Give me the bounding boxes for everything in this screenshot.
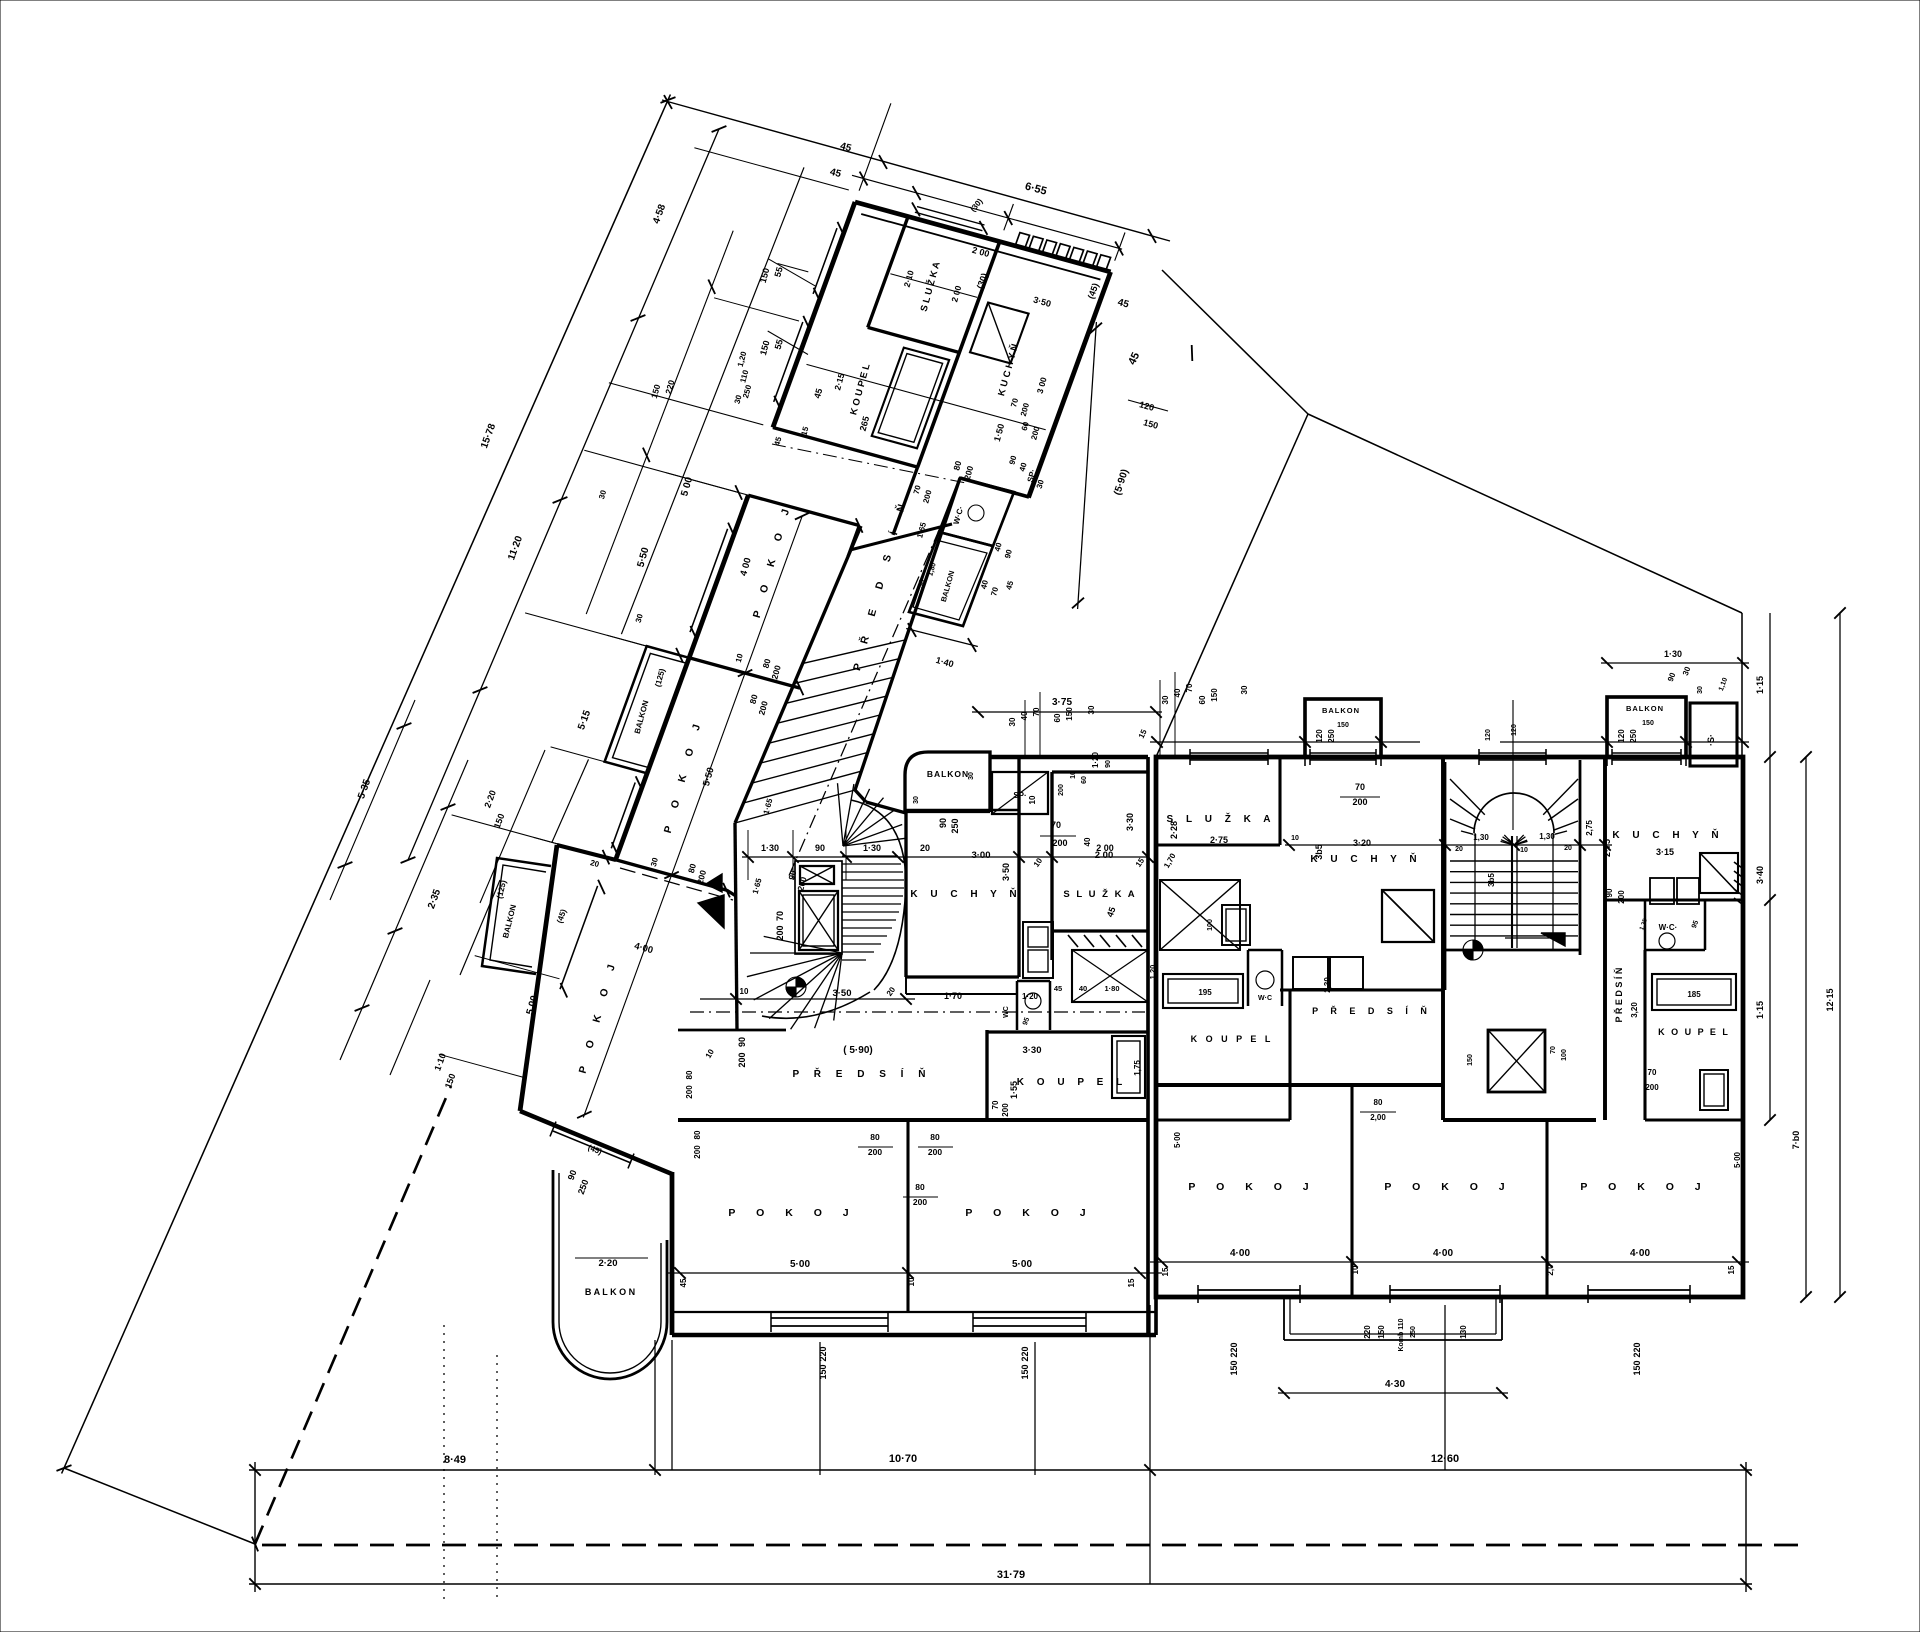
svg-text:3,20: 3,20 [1630,1002,1639,1018]
svg-text:3·50: 3·50 [832,988,851,999]
svg-text:90: 90 [1105,760,1112,768]
svg-text:80: 80 [685,1070,694,1079]
svg-text:W·C: W·C [1258,995,1272,1002]
svg-text:30: 30 [1008,717,1017,726]
svg-text:220: 220 [1363,1325,1372,1339]
svg-text:1·15: 1·15 [1755,1001,1765,1019]
svg-text:30: 30 [968,772,975,780]
svg-text:120: 120 [1315,729,1324,743]
svg-text:3·20: 3·20 [1353,838,1371,848]
svg-text:40: 40 [1020,711,1029,720]
svg-text:200: 200 [737,1052,747,1067]
svg-text:2·20: 2·20 [598,1258,617,1269]
svg-text:1·30: 1·30 [863,843,881,853]
svg-text:120: 120 [1485,729,1492,741]
svg-text:P Ř E D S Í Ň: P Ř E D S Í Ň [1613,968,1624,1023]
svg-text:20: 20 [1564,845,1572,852]
svg-text:200: 200 [1001,1103,1010,1117]
svg-text:1·20: 1·20 [1091,751,1100,768]
svg-text:200: 200 [928,1147,942,1157]
svg-text:70: 70 [775,911,785,921]
svg-text:4·00: 4·00 [1433,1248,1453,1259]
svg-text:10·70: 10·70 [889,1453,917,1465]
svg-text:150: 150 [1065,707,1074,721]
svg-text:1,30: 1,30 [1539,832,1555,841]
svg-text:30: 30 [1161,695,1170,704]
svg-text:250: 250 [1629,729,1638,743]
svg-text:70: 70 [1051,820,1061,830]
svg-text:K O U P E L: K O U P E L [1191,1034,1274,1044]
svg-text:8·49: 8·49 [444,1454,466,1466]
svg-text:·S·: ·S· [1706,734,1716,746]
svg-text:10: 10 [740,987,749,996]
svg-text:30: 30 [1087,705,1096,714]
svg-text:P O K O J: P O K O J [1580,1181,1709,1193]
svg-text:BALKON: BALKON [1626,704,1664,713]
svg-text:60: 60 [1081,776,1088,784]
svg-text:200: 200 [868,1147,882,1157]
svg-text:K O U P E L: K O U P E L [1017,1077,1127,1088]
svg-text:70: 70 [991,1100,1000,1109]
svg-text:100: 100 [1561,1049,1568,1061]
svg-text:200: 200 [1352,797,1367,807]
svg-text:2·75: 2·75 [1210,835,1228,845]
svg-text:80: 80 [870,1132,880,1142]
svg-text:120: 120 [1511,724,1518,736]
svg-text:15: 15 [1161,1267,1170,1276]
svg-text:7·b0: 7·b0 [1791,1131,1801,1150]
svg-text:3·15: 3·15 [1656,847,1674,857]
svg-text:90: 90 [737,1037,747,1047]
svg-text:3b5: 3b5 [1487,873,1496,887]
svg-text:200: 200 [1052,838,1067,848]
svg-text:5·00: 5·00 [1733,1151,1742,1168]
svg-text:3·40: 3·40 [1755,866,1765,884]
svg-text:70: 70 [1355,782,1365,792]
svg-text:200: 200 [913,1197,927,1207]
svg-text:150: 150 [1337,722,1349,729]
svg-text:195: 195 [1198,988,1212,997]
svg-text:150: 150 [1377,1325,1386,1339]
svg-text:15: 15 [1727,1265,1736,1274]
svg-text:K U C H Y Ň: K U C H Y Ň [1310,852,1421,865]
svg-text:70: 70 [1648,1068,1657,1077]
svg-text:1·30: 1·30 [761,843,779,853]
svg-text:P O K O J: P O K O J [728,1207,857,1219]
svg-text:90: 90 [1605,888,1614,897]
svg-text:10: 10 [1520,847,1528,854]
svg-text:150: 150 [1632,1360,1642,1375]
svg-text:80: 80 [915,1182,925,1192]
svg-text:120: 120 [1617,729,1626,743]
svg-text:90: 90 [815,843,825,853]
svg-text:185: 185 [1687,990,1701,999]
svg-text:3b5: 3b5 [1314,844,1324,860]
svg-text:30: 30 [1697,686,1704,694]
svg-text:2·75: 2·75 [1602,839,1612,857]
svg-text:12·15: 12·15 [1825,988,1835,1011]
svg-text:15: 15 [1127,1278,1136,1287]
svg-text:( 5·90): ( 5·90) [843,1045,872,1056]
svg-text:150: 150 [1229,1360,1239,1375]
svg-text:45: 45 [679,1278,688,1287]
svg-text:200: 200 [685,1085,694,1099]
svg-text:31·79: 31·79 [997,1569,1025,1581]
svg-text:30: 30 [1240,685,1249,694]
svg-text:90: 90 [938,818,948,828]
svg-text:220: 220 [1229,1342,1239,1357]
svg-text:40: 40 [1173,688,1182,697]
svg-text:30: 30 [913,796,920,804]
svg-text:B A L K O N: B A L K O N [585,1287,635,1297]
svg-text:80: 80 [1374,1098,1383,1107]
svg-text:150: 150 [1020,1364,1030,1379]
svg-text:80: 80 [930,1132,940,1142]
svg-text:150: 150 [1467,1054,1474,1066]
svg-text:P Ř E D S Í Ň: P Ř E D S Í Ň [793,1067,932,1080]
svg-text:200: 200 [1058,784,1065,796]
svg-text:1,75: 1,75 [1133,1060,1142,1076]
svg-text:2 00: 2 00 [1096,843,1114,853]
svg-text:70: 70 [1550,1046,1557,1054]
svg-text:40: 40 [1083,837,1092,846]
svg-text:1·30: 1·30 [1664,649,1682,659]
svg-text:3·75: 3·75 [1052,697,1072,708]
svg-text:WC: WC [1003,1006,1010,1018]
svg-text:2,75: 2,75 [1585,820,1594,836]
svg-text:150: 150 [1642,720,1654,727]
svg-text:10: 10 [1351,1265,1360,1274]
svg-text:3·30: 3·30 [1125,813,1135,831]
svg-text:200: 200 [775,925,785,940]
svg-text:BALKON: BALKON [1322,706,1360,715]
svg-text:W·C·: W·C· [1659,923,1678,932]
svg-text:S L U Ž K A: S L U Ž K A [1063,888,1136,900]
svg-text:10: 10 [1291,835,1299,842]
svg-text:1·20: 1·20 [1022,992,1039,1001]
svg-text:1,30: 1,30 [1473,833,1489,842]
svg-text:K U C H Y Ň: K U C H Y Ň [910,887,1021,900]
svg-text:S L U Ž K A: S L U Ž K A [1167,812,1276,825]
svg-text:1·70: 1·70 [944,991,962,1001]
svg-text:5·00: 5·00 [1012,1259,1032,1270]
svg-text:P Ř E D S Í Ň: P Ř E D S Í Ň [1312,1005,1432,1016]
svg-text:20: 20 [920,843,930,853]
svg-text:2,00: 2,00 [1370,1113,1386,1122]
svg-text:80: 80 [693,1130,702,1139]
svg-text:4·00: 4·00 [1230,1248,1250,1259]
svg-text:150: 150 [818,1364,828,1379]
svg-text:2,30: 2,30 [1323,977,1332,993]
svg-text:4·00: 4·00 [1630,1248,1650,1259]
svg-text:BALKON: BALKON [927,769,969,779]
svg-text:P O K O J: P O K O J [1188,1181,1317,1193]
svg-text:150: 150 [1210,688,1219,702]
svg-text:P O K O J: P O K O J [965,1207,1094,1219]
svg-text:200: 200 [1617,890,1626,904]
svg-text:20: 20 [1455,846,1463,853]
svg-text:5·00: 5·00 [1173,1131,1182,1148]
svg-text:200: 200 [693,1145,702,1159]
svg-text:K O U P E L: K O U P E L [1658,1027,1730,1037]
svg-text:3·30: 3·30 [1022,1045,1041,1056]
svg-text:1·55: 1·55 [1009,1081,1019,1099]
svg-text:2,0: 2,0 [1546,1264,1555,1276]
svg-text:220: 220 [1632,1342,1642,1357]
svg-text:1·15: 1·15 [1755,676,1765,694]
svg-text:130: 130 [1459,1325,1468,1339]
svg-text:3·00: 3·00 [971,850,990,861]
svg-text:Komb 110: Komb 110 [1398,1318,1405,1351]
svg-text:4·30: 4·30 [1385,1379,1405,1390]
svg-text:250: 250 [1410,1326,1417,1338]
svg-text:45: 45 [1054,984,1062,993]
svg-text:P O K O J: P O K O J [1384,1181,1513,1193]
svg-text:10: 10 [1070,771,1077,779]
svg-text:2·28: 2·28 [1169,821,1179,839]
svg-text:1·80: 1·80 [1104,984,1119,993]
svg-text:5·00: 5·00 [790,1259,810,1270]
svg-text:60: 60 [1053,713,1062,722]
svg-text:250: 250 [950,818,960,833]
svg-text:1,20: 1,20 [1148,965,1157,980]
svg-text:10: 10 [1028,795,1037,804]
svg-text:10: 10 [907,1277,916,1286]
svg-text:70: 70 [1185,683,1194,692]
svg-text:K U C H Y Ň: K U C H Y Ň [1612,828,1723,841]
svg-text:60: 60 [1198,695,1207,704]
svg-text:40: 40 [1079,984,1087,993]
svg-text:3·50: 3·50 [1001,863,1011,881]
svg-text:200: 200 [1645,1083,1659,1092]
svg-text:220: 220 [1020,1346,1030,1361]
svg-text:220: 220 [818,1346,828,1361]
svg-text:250: 250 [1327,729,1336,743]
